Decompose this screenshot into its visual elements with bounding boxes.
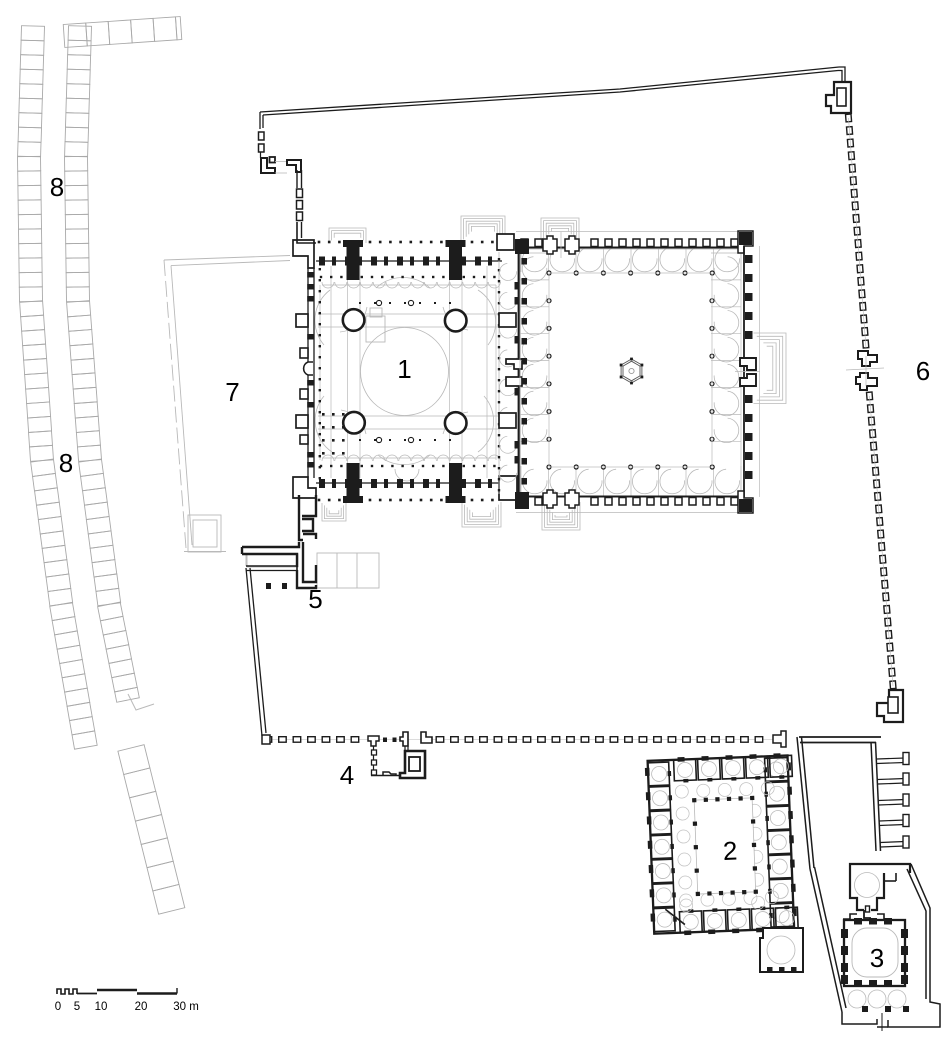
svg-text:20: 20 <box>135 1001 148 1013</box>
svg-text:0: 0 <box>55 1001 61 1013</box>
svg-text:8: 8 <box>59 448 73 478</box>
svg-text:5: 5 <box>308 584 322 614</box>
svg-text:5: 5 <box>74 1001 80 1013</box>
svg-text:2: 2 <box>722 836 738 867</box>
svg-text:1: 1 <box>397 354 411 384</box>
svg-text:8: 8 <box>50 172 64 202</box>
svg-text:30 m: 30 m <box>173 1001 199 1013</box>
svg-text:3: 3 <box>870 943 884 973</box>
svg-text:6: 6 <box>916 356 930 386</box>
svg-text:10: 10 <box>95 1001 108 1013</box>
svg-text:4: 4 <box>340 760 354 790</box>
svg-text:7: 7 <box>225 377 239 407</box>
